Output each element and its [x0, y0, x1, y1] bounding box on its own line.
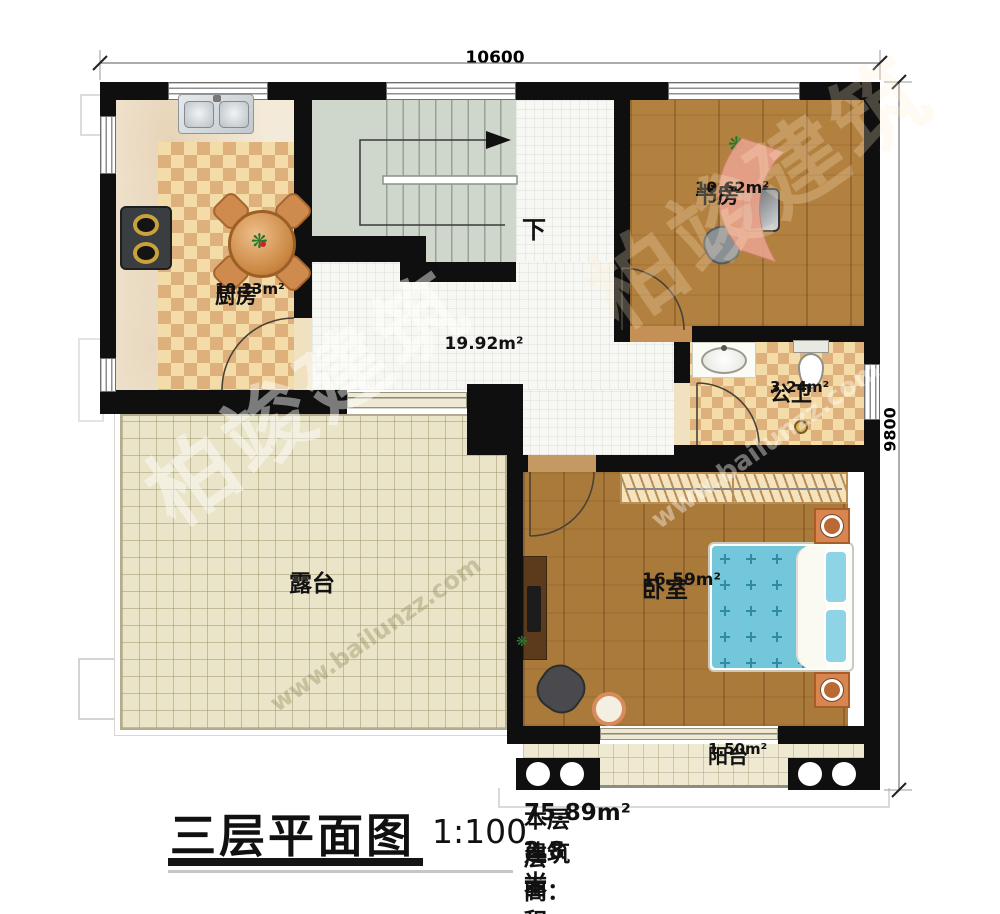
kitchen-sink [178, 94, 254, 134]
wall-bedroom-top-b [596, 455, 864, 472]
stove-burner [133, 242, 159, 264]
sink-basin [184, 101, 214, 128]
title-underline [168, 858, 423, 866]
bathroom-area: 3.24m² [770, 378, 829, 396]
terrace-sliding-door [347, 392, 467, 408]
bed-mattress [712, 546, 808, 668]
floor-plan: 10600 9800 [0, 0, 1000, 914]
title-block: 三层平面图 1:100 本层建筑面积：75.89m² 层高：2.8米 [0, 794, 1000, 914]
bed-blanket [796, 546, 826, 668]
balcony-post-dot [798, 762, 822, 786]
wall-under-stairs-a [294, 236, 426, 262]
stairs-down-label: 下 [522, 210, 546, 245]
nightstand-lamp [821, 679, 843, 701]
balcony-sliding-door [600, 728, 778, 740]
wardrobe-rail [626, 488, 842, 490]
floor-area-value: 75.89m² [524, 800, 631, 826]
balcony-post-dot [832, 762, 856, 786]
bathroom-window [864, 364, 880, 420]
floor-height-value: 2.8米 [524, 838, 565, 898]
wall-bedroom-bottom-right [778, 726, 864, 744]
wall-bedroom-left [507, 455, 523, 726]
bedroom-rug [592, 692, 626, 726]
nightstand [814, 672, 850, 708]
wall-right [864, 82, 880, 790]
bedroom-area: 16.59m² [642, 570, 721, 590]
bathroom-faucet [721, 345, 727, 351]
bathroom-sink-basin [701, 347, 747, 374]
wall-bathroom-left [674, 342, 690, 383]
table-plant-icon: ❋ [251, 229, 268, 253]
dimension-right-label: 9800 [881, 402, 900, 458]
bedroom-monitor [527, 586, 541, 632]
kitchen-door-gap [294, 318, 312, 390]
dimension-tick [873, 56, 887, 70]
study-door-gap [630, 326, 692, 342]
dimension-tick [93, 56, 107, 70]
kitchen-stove [120, 206, 172, 270]
stairs-window [386, 82, 516, 100]
floor-drain [794, 420, 808, 434]
sink-faucet [213, 95, 221, 102]
dimension-tick [892, 75, 906, 89]
drawing-title: 三层平面图 [170, 800, 415, 866]
balcony-post-dot [526, 762, 550, 786]
bed-pattern [712, 546, 808, 668]
dining-table: ❋ [228, 210, 296, 278]
stove-burner [133, 214, 159, 236]
balcony-area: 1.50m² [708, 740, 767, 758]
toilet-tank [793, 340, 829, 353]
balcony-post-dot [560, 762, 584, 786]
bed-pillow [824, 608, 848, 664]
study-window [668, 82, 800, 100]
kitchen-side-window-lower [100, 358, 116, 392]
kitchen-area: 10.23m² [215, 280, 285, 298]
hall-area-label: 19.92m² [445, 334, 524, 354]
study-plant-icon: ❋ [728, 132, 745, 156]
wall-hall-pillar [467, 384, 523, 455]
wardrobe [620, 472, 848, 504]
kitchen-side-window [100, 116, 116, 174]
wall-bedroom-bottom-left [507, 726, 600, 744]
study-area: 10.62m² [695, 178, 769, 197]
bathroom-sink-counter [692, 342, 756, 378]
nightstand [814, 508, 850, 544]
wall-kitchen-terrace [100, 390, 347, 414]
terrace-label: 露台 [289, 564, 335, 598]
bedroom-door-gap [528, 455, 596, 472]
sink-basin [219, 101, 249, 128]
nightstand-lamp [821, 515, 843, 537]
table-plant-dot [260, 241, 266, 247]
wall-under-stairs-b [400, 262, 516, 282]
bathroom-door-gap [674, 383, 690, 445]
wall-bedroom-top-a [507, 455, 528, 472]
title-underline-light [168, 870, 513, 873]
bed-pillow [824, 550, 848, 604]
bedroom-plant-icon: ❋ [516, 634, 528, 650]
drawing-scale: 1:100 [432, 812, 527, 851]
wardrobe-divider [732, 474, 734, 502]
wall-study-left [614, 100, 630, 342]
wall-study-bottom [692, 326, 864, 342]
dimension-top-label: 10600 [452, 48, 538, 68]
